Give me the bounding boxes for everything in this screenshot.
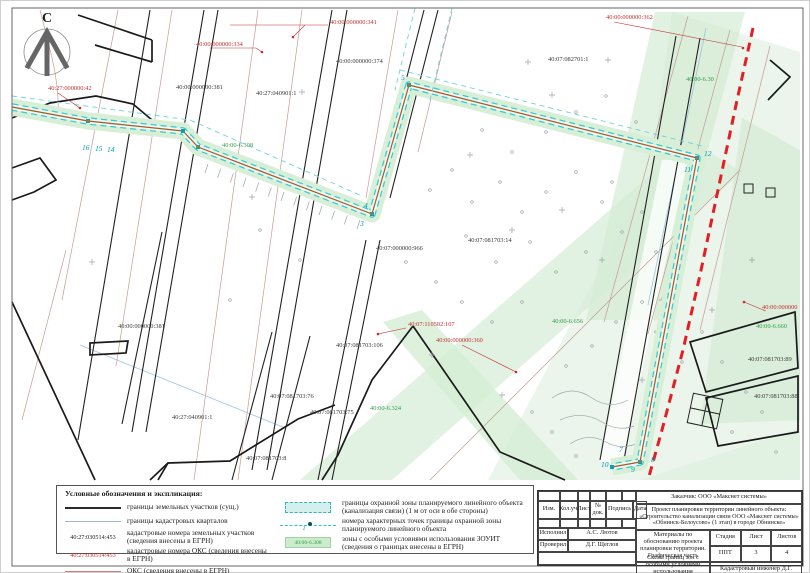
cadastral-label: 40:00-6.308 — [222, 142, 253, 149]
title-block: Изм. Кол.уч. Лист № док. Подпись Дата Ис… — [537, 490, 803, 566]
legend-symbol-line-bold — [65, 501, 121, 514]
legend-item-text: границы кадастровых кварталов — [127, 517, 228, 525]
cadastral-label: 40:07:081703:88 — [754, 393, 798, 400]
legend-symbol-line-thin-blue — [65, 515, 121, 528]
cadastral-label: 40:27:000000:42 — [48, 85, 92, 92]
legend-symbol-code-red: 40:27:030514:453 — [65, 549, 121, 562]
north-letter: С — [42, 11, 52, 26]
drawing-title: Схема границ зон с особыми условиями исп… — [646, 554, 700, 573]
name-lyutov: А.С. Лютов — [568, 528, 636, 540]
legend-item-text: ОКС (сведения внесены в ЕГРН) — [127, 567, 229, 573]
cadastral-label: 40:07:081703:75 — [310, 409, 354, 416]
sheet-value: 3 — [741, 546, 772, 562]
stage-value: ППТ — [710, 546, 741, 562]
cadastral-label: 10 — [601, 460, 609, 469]
legend-symbol-zone-box — [280, 501, 336, 514]
cadastral-label: 12 — [704, 149, 712, 158]
cadastral-label: 40:00:000000:381 — [176, 84, 223, 91]
legend-item-text: кадастровые номера земельных участков (с… — [127, 529, 270, 546]
cadastral-label: 3 — [359, 219, 364, 228]
legend-item: границы охранной зоны планируемого линей… — [280, 499, 527, 516]
cadastral-label: 40:00:000000:360 — [436, 337, 483, 344]
cadastral-label: 40:27:040901:1 — [172, 414, 212, 421]
legend-item-text: номера характерных точек границы охранно… — [342, 517, 527, 534]
legend-item: 1номера характерных точек границы охранн… — [280, 517, 527, 534]
customer: Заказчик: ООО «Макснет системы» — [636, 491, 802, 504]
cadastral-label: 40:00:000000:381 — [118, 323, 165, 330]
cadastral-label: 40:00:000000:334 — [196, 41, 244, 48]
legend-item: 40:00-6.308зоны с особыми условиями испо… — [280, 535, 527, 552]
col-izm: Изм. — [538, 501, 560, 519]
legend-box: Условные обозначения и экспликация: гран… — [56, 485, 534, 554]
col-koluch: Кол.уч. — [560, 501, 578, 519]
cadastral-label: 40:00-6.324 — [370, 405, 402, 412]
sheets-value: 4 — [771, 546, 802, 562]
cadastral-label: 16 — [82, 143, 90, 152]
cadastral-label: 40:07:081703:14 — [468, 237, 512, 244]
legend-item: 40:27:030514:453кадастровые номера земел… — [65, 529, 270, 546]
cadastral-label: 8 — [651, 455, 655, 464]
north-compass: С — [24, 11, 70, 76]
project-title: Проект планировки территории линейного о… — [636, 504, 802, 530]
cadastral-label: 40:00:000000:374 — [336, 58, 384, 65]
cadastral-label: 40:27:040901:1 — [256, 90, 296, 97]
cadastral-label: 40:07:081703:106 — [336, 342, 383, 349]
sheet-label: Лист — [741, 530, 772, 546]
cadastral-label: 40:07:110502:107 — [408, 321, 455, 328]
legend-item-text: зоны с особыми условиями использования З… — [342, 535, 527, 552]
legend-title: Условные обозначения и экспликация: — [65, 489, 270, 498]
cadastral-label: 4 — [364, 201, 368, 210]
cadastral-label: 11 — [684, 165, 691, 174]
cadastral-label: 40:00:000000:341 — [330, 19, 377, 26]
cadastral-label: 40:00:000000:362 — [606, 14, 653, 21]
legend-item-text: кадастровые номера ОКС (сведения внесены… — [127, 547, 270, 564]
col-doc: № док. — [590, 501, 606, 519]
legend-symbol-zouit-box: 40:00-6.308 — [280, 536, 336, 549]
name-scheglov: Д.Г. Щеглов — [568, 540, 636, 552]
col-podpis: Подпись — [606, 501, 633, 519]
cadastral-label: 40:07:000000:966 — [376, 245, 423, 252]
legend-item: ОКС (сведения внесены в ЕГРН) — [65, 565, 270, 573]
cadastral-label: 15 — [95, 144, 103, 153]
cadastral-label: 40:07:081703:89 — [748, 356, 792, 363]
cadastral-label: 40:00:000000 — [762, 304, 798, 311]
legend-symbol-line-thin-red — [65, 565, 121, 573]
role-proveril: Проверил — [538, 540, 568, 552]
legend-item: 40:27:030514:453кадастровые номера ОКС (… — [65, 547, 270, 564]
cadastral-label: 40:00-6.656 — [552, 318, 583, 325]
legend-symbol-code-black: 40:27:030514:453 — [65, 531, 121, 544]
cadastral-label: 40:07:082701:1 — [548, 56, 588, 63]
legend-item-text: границы земельных участков (сущ.) — [127, 503, 239, 511]
cadastral-label: 40:07:081703:8 — [246, 455, 286, 462]
legend-symbol-point-line: 1 — [280, 519, 336, 532]
legend-item: границы земельных участков (сущ.) — [65, 501, 270, 514]
certifier: Кадастровый инженер Д.Г. Щеглов — [710, 562, 802, 573]
stage-label: Стадия — [710, 530, 741, 546]
sheets-label: Листов — [771, 530, 802, 546]
cadastral-label: 40:00-6.30 — [686, 76, 714, 83]
legend-item: границы кадастровых кварталов — [65, 515, 270, 528]
cadastral-plan-sheet: С 40:27:000000:4240:00:000000:34140:00:0… — [0, 0, 810, 573]
role-ispolnil: Исполнил — [538, 528, 568, 540]
cadastral-label: 40:07:081703:76 — [270, 393, 314, 400]
cadastral-label: 5 — [401, 73, 405, 82]
cadastral-label: 40:00-6.660 — [756, 323, 787, 330]
cadastral-label: 14 — [107, 145, 115, 154]
legend-item-text: границы охранной зоны планируемого линей… — [342, 499, 527, 516]
col-list: Лист — [578, 501, 590, 519]
cadastral-label: 9 — [631, 465, 635, 474]
